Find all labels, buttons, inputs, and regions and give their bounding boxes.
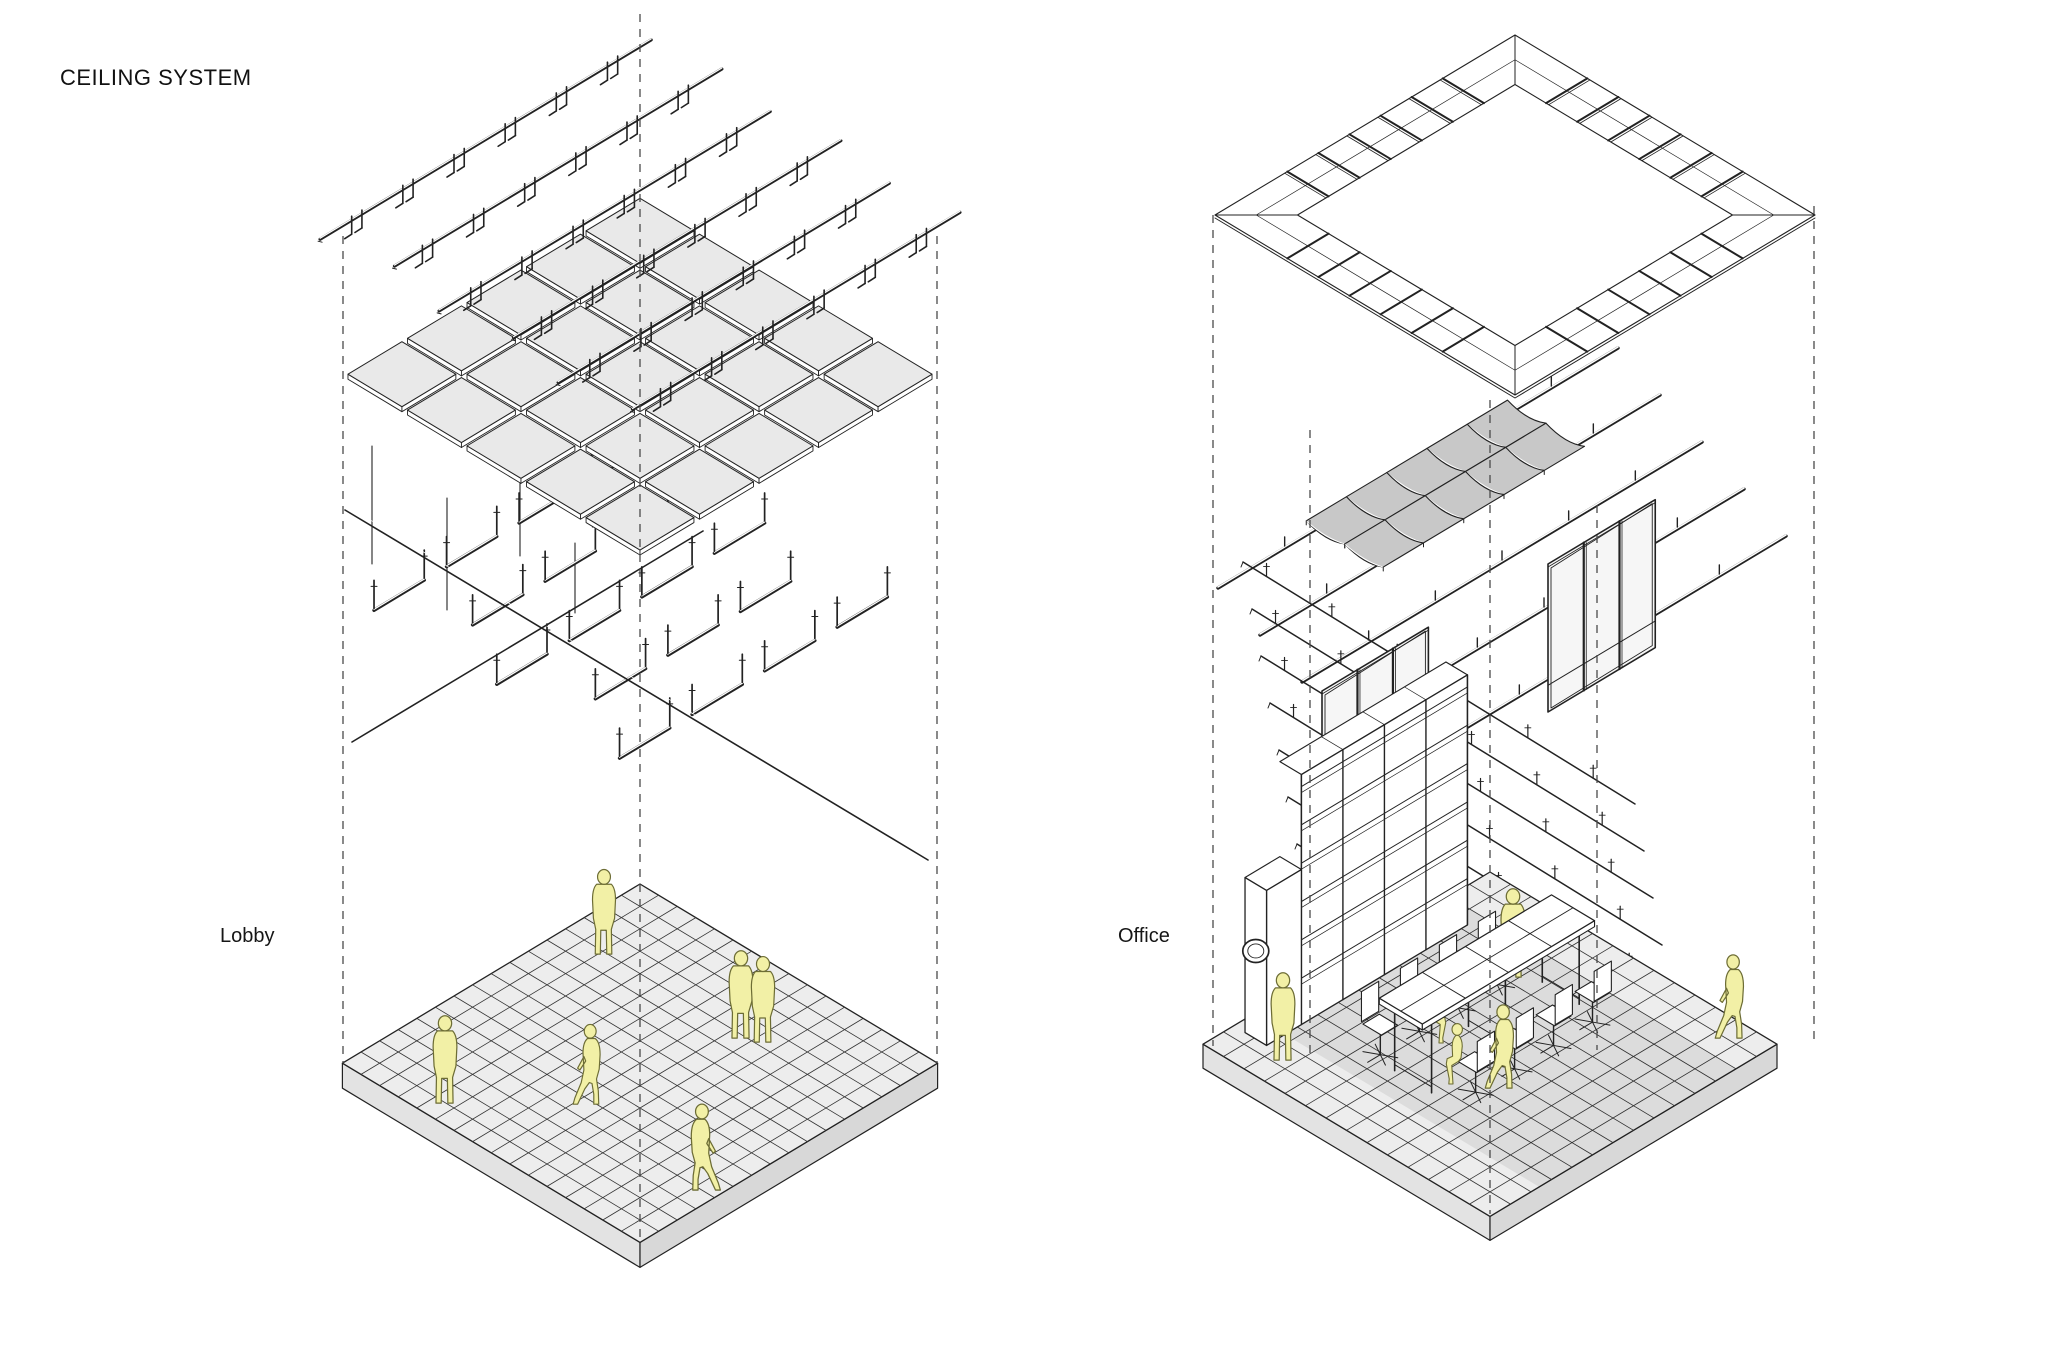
curved-panel-layer <box>1306 400 1584 571</box>
lobby-diagram <box>318 14 960 1267</box>
page-title: CEILING SYSTEM <box>60 65 252 91</box>
wall-clock <box>1243 939 1269 962</box>
label-lobby: Lobby <box>220 925 275 948</box>
carrier-channel-layer <box>345 419 930 860</box>
label-office: Office <box>1118 925 1170 948</box>
lobby-floor <box>342 884 937 1267</box>
office-diagram <box>1203 35 1815 1240</box>
ceiling-system-sheet: CEILING SYSTEM Lobby Office <box>0 0 2048 1366</box>
exploded-axonometric-drawing <box>0 0 2048 1366</box>
ceiling-ring-layer <box>1215 35 1815 398</box>
